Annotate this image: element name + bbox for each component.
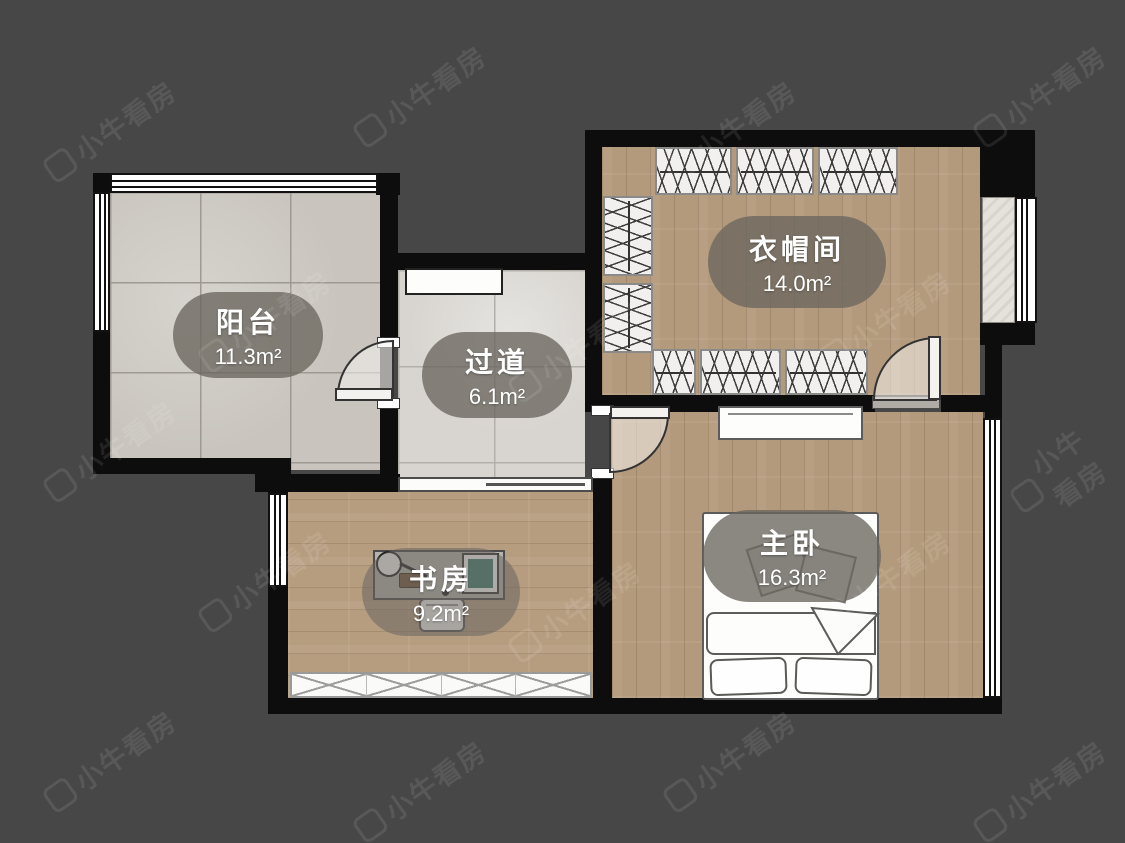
- sliding-door-rail: [486, 483, 585, 486]
- room-area: 16.3m²: [758, 565, 826, 591]
- watermark-text: 小牛看房: [66, 700, 183, 798]
- storage-cell: [516, 674, 590, 696]
- niu-logo-icon: [41, 465, 80, 504]
- room-name: 阳台: [216, 301, 280, 341]
- storage-cell: [367, 674, 442, 696]
- niu-logo-icon: [351, 805, 390, 843]
- dresser-icon: [718, 406, 863, 440]
- wardrobe-icon: [603, 196, 653, 276]
- room-name: 主卧: [760, 522, 824, 562]
- room-label-balcony: 阳台 11.3m²: [173, 292, 323, 378]
- study-storage-cabinet-icon: [290, 672, 592, 698]
- wall-segment: [941, 395, 990, 412]
- bedroom-right-window-icon: [983, 418, 1002, 698]
- watermark: 小牛看房: [347, 730, 493, 843]
- watermark-text: 小牛看房: [1022, 403, 1125, 516]
- wall-segment: [585, 130, 602, 412]
- room-area: 11.3m²: [215, 344, 282, 370]
- balcony-door-panel-icon: [335, 388, 393, 401]
- wall-segment: [593, 478, 612, 698]
- watermark-text: 小牛看房: [66, 70, 183, 168]
- niu-logo-icon: [1008, 476, 1047, 515]
- niu-logo-icon: [661, 775, 700, 814]
- bedroom-door-swing-icon: [608, 412, 672, 476]
- dresser-detail: [728, 413, 853, 415]
- niu-logo-icon: [41, 145, 80, 184]
- wall-segment: [268, 698, 1002, 714]
- watermark-text: 小牛看房: [376, 35, 493, 133]
- watermark: 小牛看房: [657, 700, 803, 819]
- room-label-master-bedroom: 主卧 16.3m²: [703, 510, 881, 602]
- wall-segment: [93, 458, 291, 474]
- room-label-cloakroom: 衣帽间 14.0m²: [708, 216, 886, 308]
- room-area: 14.0m²: [763, 271, 831, 297]
- watermark: 小牛看房: [37, 70, 183, 189]
- wardrobe-icon: [652, 349, 696, 395]
- wall-segment: [268, 474, 288, 494]
- room-label-study: 书房 9.2m²: [362, 548, 520, 636]
- niu-logo-icon: [971, 805, 1010, 843]
- balcony-left-window-icon: [93, 192, 110, 332]
- room-name: 衣帽间: [749, 228, 845, 268]
- room-label-hallway: 过道 6.1m²: [422, 332, 572, 418]
- watermark: 小牛看房: [967, 730, 1113, 843]
- watermark: 小牛看房: [993, 403, 1125, 536]
- pillow-icon: [709, 657, 787, 697]
- room-name: 书房: [409, 558, 473, 598]
- wardrobe-icon: [736, 147, 814, 195]
- wardrobe-icon: [818, 147, 898, 195]
- bedroom-door-panel-icon: [610, 406, 670, 419]
- wardrobe-icon: [785, 349, 868, 395]
- watermark: 小牛看房: [37, 700, 183, 819]
- watermark-text: 小牛看房: [996, 35, 1113, 133]
- wall-segment: [602, 130, 990, 147]
- hallway-cabinet-icon: [405, 268, 503, 295]
- blanket-fold-icon: [808, 594, 882, 658]
- storage-cell: [292, 674, 367, 696]
- wardrobe-icon: [603, 283, 653, 353]
- bay-window-sill: [982, 197, 1015, 323]
- balcony-top-window-icon: [110, 173, 378, 193]
- pillow-icon: [794, 657, 872, 697]
- room-area: 9.2m²: [413, 601, 469, 627]
- floor-plan-canvas: 阳台 11.3m² 过道 6.1m² 衣帽间 14.0m² 书房 9.2m² 主…: [0, 0, 1125, 843]
- room-area: 6.1m²: [469, 384, 525, 410]
- watermark-text: 小牛看房: [686, 700, 803, 798]
- study-left-window-icon: [268, 493, 288, 587]
- niu-logo-icon: [41, 775, 80, 814]
- cloakroom-door-panel-icon: [928, 336, 941, 400]
- watermark-text: 小牛看房: [376, 730, 493, 828]
- wall-segment: [983, 698, 1002, 714]
- watermark-text: 小牛看房: [996, 730, 1113, 828]
- wall-segment: [380, 402, 398, 478]
- wall-segment: [268, 586, 288, 700]
- niu-logo-icon: [196, 595, 235, 634]
- wall-segment: [93, 330, 110, 474]
- wall-segment: [980, 130, 1035, 197]
- storage-cell: [442, 674, 517, 696]
- niu-logo-icon: [351, 110, 390, 149]
- cloakroom-bay-window-icon: [1015, 197, 1037, 323]
- watermark: 小牛看房: [347, 35, 493, 154]
- wardrobe-icon: [700, 349, 781, 395]
- room-name: 过道: [465, 341, 529, 381]
- sliding-door-icon: [398, 477, 593, 492]
- wardrobe-icon: [655, 147, 732, 195]
- wall-segment: [980, 323, 1035, 345]
